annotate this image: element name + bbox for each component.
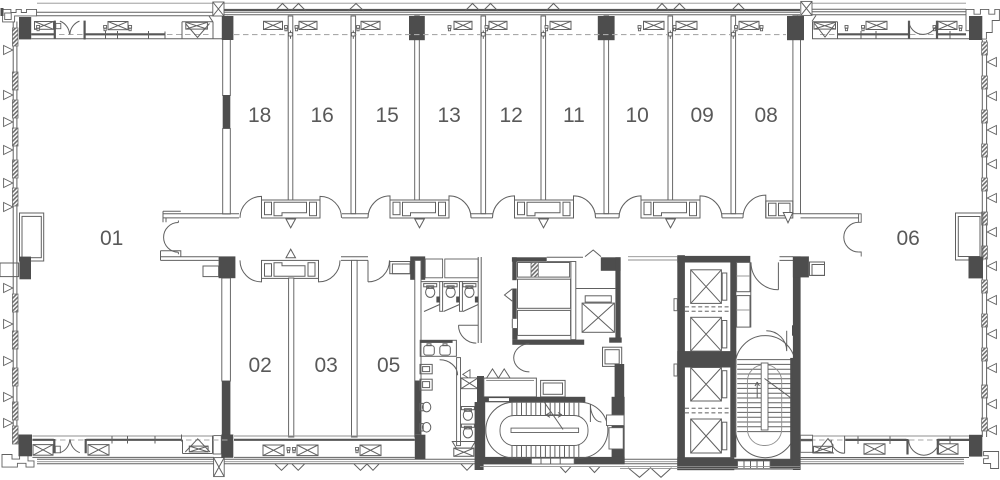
svg-text:03: 03: [315, 354, 338, 377]
svg-text:15: 15: [376, 104, 399, 127]
svg-text:02: 02: [249, 354, 272, 377]
svg-text:09: 09: [691, 104, 714, 127]
svg-text:06: 06: [897, 227, 920, 250]
svg-text:16: 16: [311, 104, 334, 127]
svg-text:13: 13: [438, 104, 461, 127]
svg-text:10: 10: [626, 104, 649, 127]
svg-text:12: 12: [500, 104, 523, 127]
svg-text:05: 05: [377, 354, 400, 377]
svg-text:08: 08: [755, 104, 778, 127]
svg-text:18: 18: [248, 104, 271, 127]
svg-text:11: 11: [563, 104, 585, 127]
svg-text:01: 01: [100, 227, 123, 250]
